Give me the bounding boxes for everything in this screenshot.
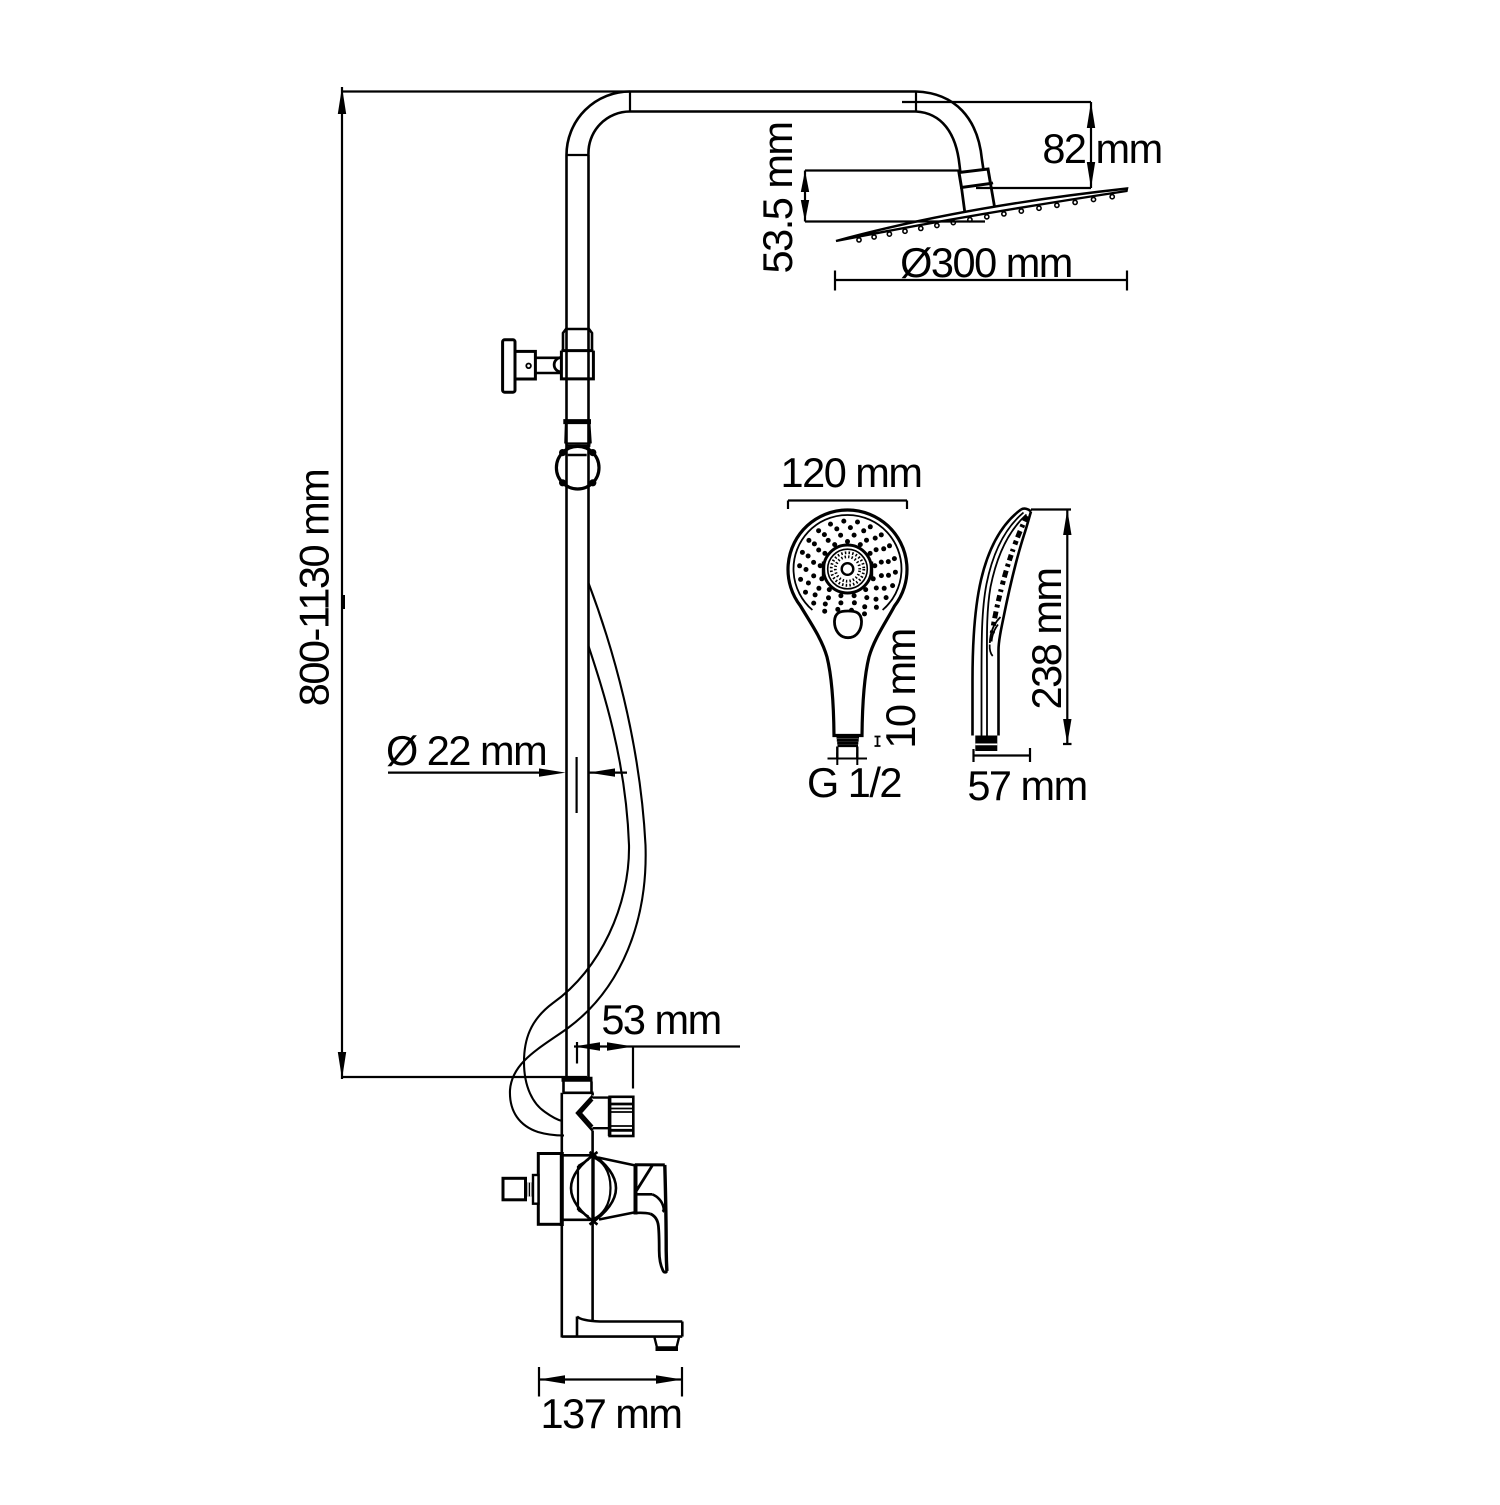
svg-text:137 mm: 137 mm xyxy=(541,1390,682,1437)
svg-text:53 mm: 53 mm xyxy=(601,996,720,1043)
svg-text:120 mm: 120 mm xyxy=(781,449,922,496)
svg-text:Ø 22 mm: Ø 22 mm xyxy=(386,727,546,774)
svg-text:82 mm: 82 mm xyxy=(1042,125,1161,172)
svg-text:57 mm: 57 mm xyxy=(967,762,1086,809)
svg-text:G 1/2: G 1/2 xyxy=(807,759,901,806)
svg-text:53.5 mm: 53.5 mm xyxy=(754,123,801,274)
svg-text:10 mm: 10 mm xyxy=(877,629,924,748)
svg-text:238 mm: 238 mm xyxy=(1023,569,1070,710)
svg-text:Ø300 mm: Ø300 mm xyxy=(900,239,1072,286)
svg-text:800-1130 mm: 800-1130 mm xyxy=(291,470,338,706)
